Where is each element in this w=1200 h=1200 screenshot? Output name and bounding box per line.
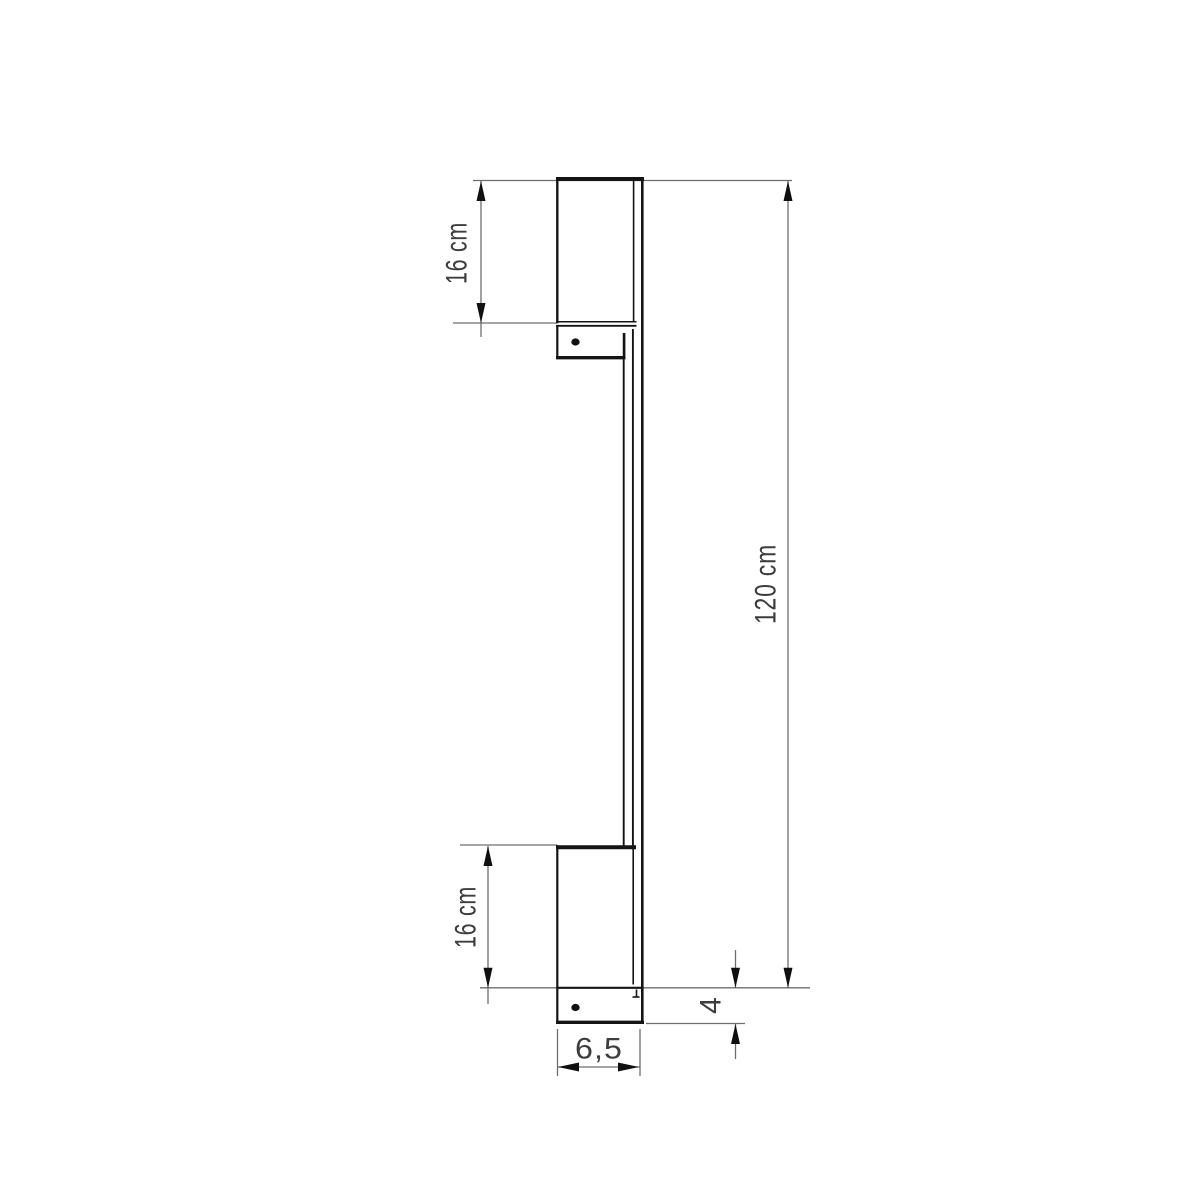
technical-drawing-canvas: 16 cm 16 cm 120 cm 4 6,5 (0, 0, 1200, 1200)
arrow-down-icon (731, 968, 740, 988)
label-base-depth: 4 (695, 996, 728, 1014)
label-top-section-height: 16 cm (441, 222, 474, 284)
label-base-width: 6,5 (575, 1033, 623, 1066)
screw-icon (571, 1004, 579, 1011)
arrow-up-icon (784, 181, 793, 201)
lamp-bottom-housing (556, 845, 644, 1024)
label-overall-height: 120 cm (750, 544, 783, 624)
arrowheads-layer (477, 181, 793, 1072)
wall-bracket-top (556, 326, 626, 359)
arrow-down-icon (477, 303, 486, 323)
arrow-up-icon (731, 1024, 740, 1044)
screw-icon (571, 338, 579, 345)
lamp-dimension-drawing: 16 cm 16 cm 120 cm 4 6,5 (0, 0, 1200, 1200)
dimension-labels-layer: 16 cm 16 cm 120 cm 4 6,5 (441, 222, 783, 1066)
lamp-top-housing (556, 177, 644, 326)
arrow-up-icon (484, 846, 493, 866)
lamp-outline-layer (556, 177, 644, 1024)
dimension-lines-layer (453, 181, 810, 1077)
arrow-down-icon (484, 968, 493, 988)
label-bottom-section-height: 16 cm (450, 886, 483, 948)
arrow-up-icon (477, 181, 486, 201)
arrow-down-icon (784, 968, 793, 988)
lamp-tube (624, 329, 633, 846)
